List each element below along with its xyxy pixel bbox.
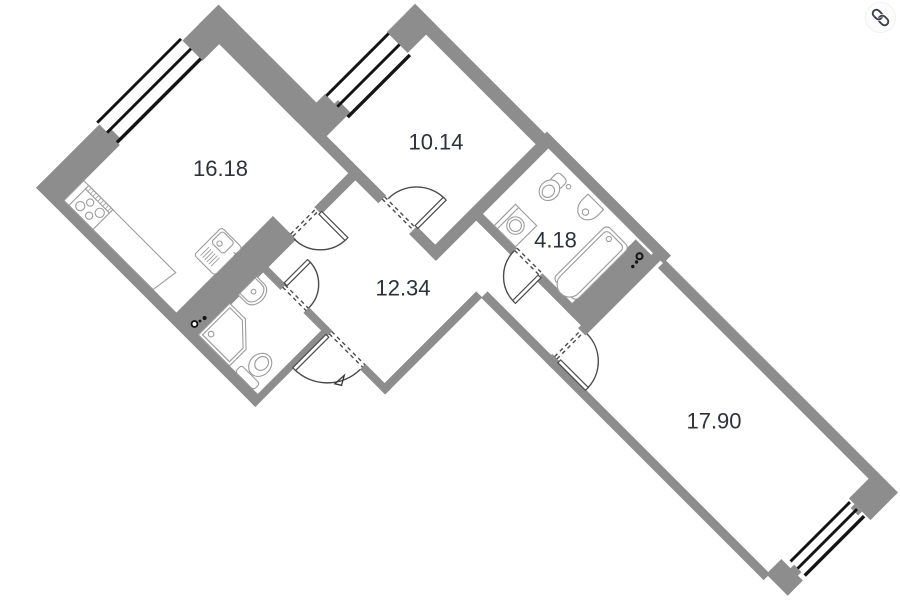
svg-text:4.18: 4.18 (534, 228, 577, 253)
svg-text:16.18: 16.18 (193, 156, 248, 181)
svg-text:17.90: 17.90 (686, 409, 741, 434)
svg-text:12.34: 12.34 (375, 276, 430, 301)
svg-text:10.14: 10.14 (408, 130, 463, 155)
